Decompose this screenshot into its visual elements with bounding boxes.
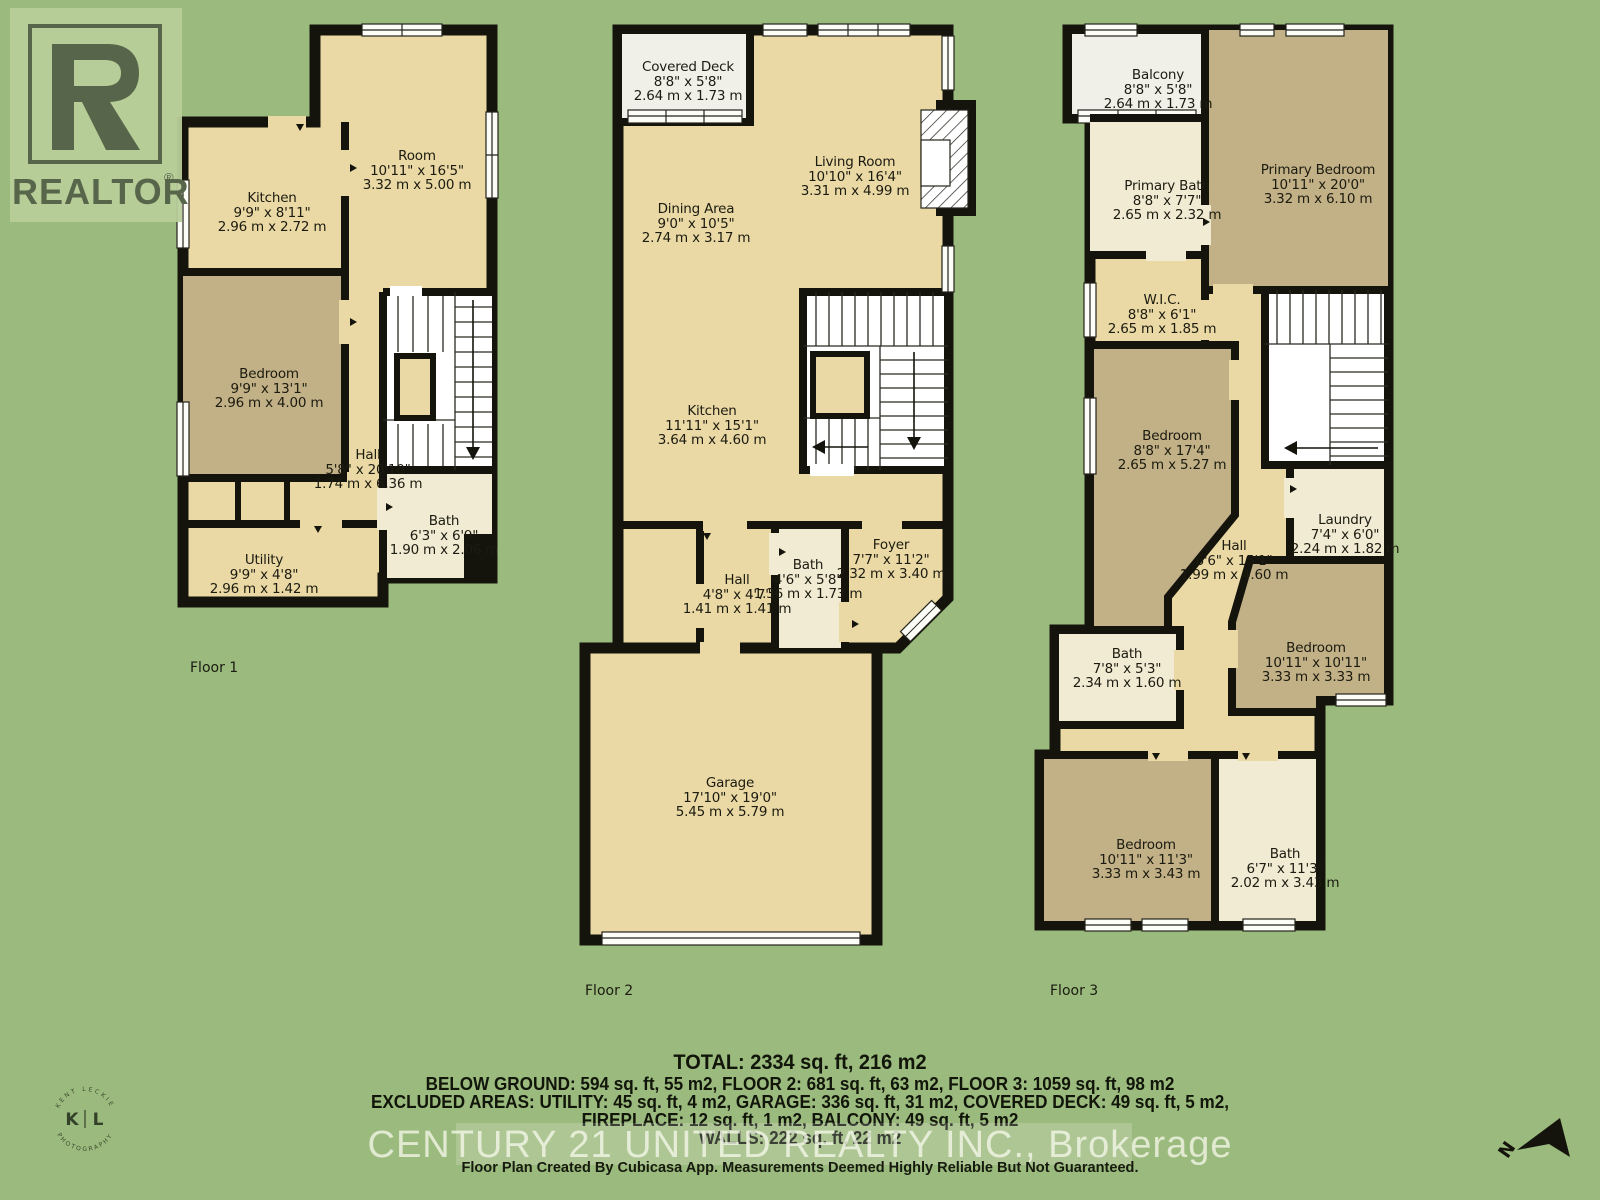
garage-door bbox=[602, 932, 860, 945]
floor1-label: Floor 1 bbox=[190, 660, 238, 676]
room-label-bath-f3a: Bath 7'8" x 5'3" 2.34 m x 1.60 m bbox=[1073, 647, 1182, 691]
registered-mark-icon: ® bbox=[164, 170, 174, 185]
fireplace bbox=[921, 100, 976, 216]
floor-plan-sheet: REALTOR ® KENT LECKIE PHOTOGRAPHY K L N … bbox=[0, 0, 1600, 1200]
room-label-living-room: Living Room 10'10" x 16'4" 3.31 m x 4.99… bbox=[801, 155, 910, 199]
room-label-garage: Garage 17'10" x 19'0" 5.45 m x 5.79 m bbox=[676, 776, 785, 820]
deck-railing bbox=[628, 110, 742, 123]
room-label-bedroom-f3a: Bedroom 8'8" x 17'4" 2.65 m x 5.27 m bbox=[1118, 429, 1227, 473]
disclaimer-text: Floor Plan Created By Cubicasa App. Meas… bbox=[24, 1159, 1576, 1176]
floor2-label: Floor 2 bbox=[585, 983, 633, 999]
summary-total: TOTAL: 2334 sq. ft, 216 m2 bbox=[40, 1051, 1560, 1075]
room-label-primary-bath: Primary Bath 8'8" x 7'7" 2.65 m x 2.32 m bbox=[1113, 179, 1222, 223]
room-label-primary-bedroom: Primary Bedroom 10'11" x 20'0" 3.32 m x … bbox=[1261, 163, 1376, 207]
room-label-bedroom-f3b: Bedroom 10'11" x 10'11" 3.33 m x 3.33 m bbox=[1262, 641, 1371, 685]
realtor-logo: REALTOR ® bbox=[0, 0, 200, 240]
room-label-wic: W.I.C. 8'8" x 6'1" 2.65 m x 1.85 m bbox=[1108, 293, 1217, 337]
room-label-hall-f1: Hall 5'8" x 20'10" 1.74 m x 6.36 m bbox=[314, 448, 423, 492]
room-label-kitchen-f1: Kitchen 9'9" x 8'11" 2.96 m x 2.72 m bbox=[218, 191, 327, 235]
room-label-bath-f1: Bath 6'3" x 6'9" 1.90 m x 2.06 m bbox=[390, 514, 499, 558]
room-label-hall-f2: Hall 4'8" x 4'7" 1.41 m x 1.41 m bbox=[683, 573, 792, 617]
room-label-hall-f3: Hall 6'6" x 15'1" 1.99 m x 4.60 m bbox=[1180, 539, 1289, 583]
floor3-plan bbox=[1040, 24, 1388, 931]
room-label-balcony: Balcony 8'8" x 5'8" 2.64 m x 1.73 m bbox=[1104, 68, 1213, 112]
floor3-stairs bbox=[1265, 290, 1388, 465]
room-label-room: Room 10'11" x 16'5" 3.32 m x 5.00 m bbox=[363, 149, 472, 193]
room-label-bedroom-f1: Bedroom 9'9" x 13'1" 2.96 m x 4.00 m bbox=[215, 367, 324, 411]
room-label-dining-area: Dining Area 9'0" x 10'5" 2.74 m x 3.17 m bbox=[642, 202, 751, 246]
room-label-laundry: Laundry 7'4" x 6'0" 2.24 m x 1.82 m bbox=[1291, 513, 1400, 557]
room-label-kitchen-f2: Kitchen 11'11" x 15'1" 3.64 m x 4.60 m bbox=[658, 404, 767, 448]
room-label-covered-deck: Covered Deck 8'8" x 5'8" 2.64 m x 1.73 m bbox=[634, 60, 743, 104]
room-label-bedroom-f3c: Bedroom 10'11" x 11'3" 3.33 m x 3.43 m bbox=[1092, 838, 1201, 882]
floor3-label: Floor 3 bbox=[1050, 983, 1098, 999]
room-label-bath-f3b: Bath 6'7" x 11'3" 2.02 m x 3.43 m bbox=[1231, 847, 1340, 891]
room-label-utility: Utility 9'9" x 4'8" 2.96 m x 1.42 m bbox=[210, 553, 319, 597]
floor2-stairs bbox=[803, 292, 948, 476]
